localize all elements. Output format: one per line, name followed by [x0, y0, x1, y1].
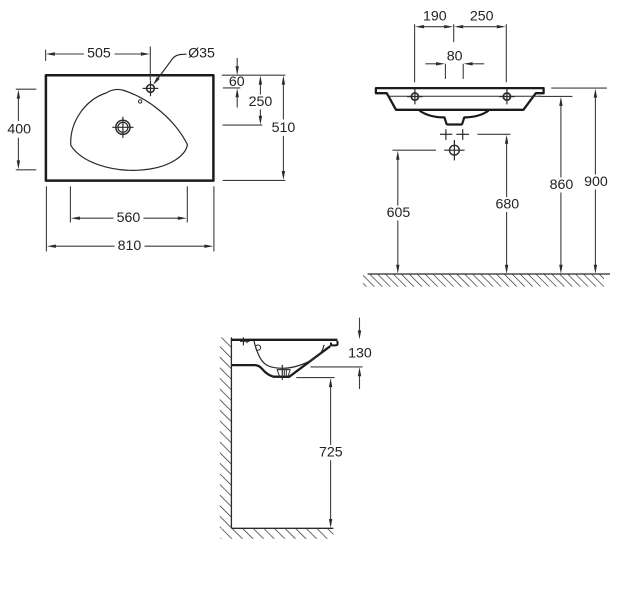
- svg-text:810: 810: [118, 238, 142, 254]
- svg-text:505: 505: [87, 46, 111, 62]
- svg-text:860: 860: [550, 177, 574, 193]
- svg-text:510: 510: [272, 120, 296, 136]
- svg-text:605: 605: [387, 205, 411, 221]
- svg-text:250: 250: [249, 94, 273, 110]
- svg-text:80: 80: [447, 48, 463, 64]
- svg-text:250: 250: [470, 8, 494, 24]
- svg-text:130: 130: [348, 345, 372, 361]
- svg-text:680: 680: [495, 197, 519, 213]
- svg-text:560: 560: [117, 210, 141, 226]
- svg-text:900: 900: [584, 174, 608, 190]
- svg-text:725: 725: [319, 445, 343, 461]
- svg-text:Ø35: Ø35: [188, 46, 215, 62]
- svg-text:60: 60: [229, 74, 245, 90]
- svg-text:400: 400: [7, 121, 31, 137]
- svg-text:190: 190: [423, 8, 447, 24]
